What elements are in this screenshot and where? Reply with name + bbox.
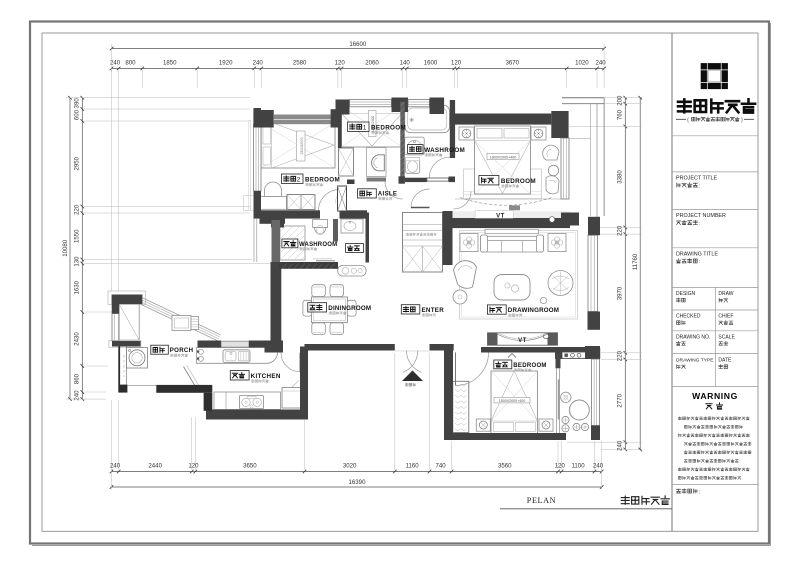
svg-text:WASHROOM: WASHROOM: [424, 147, 465, 154]
svg-text:16390: 16390: [349, 479, 367, 486]
svg-text:PELAN: PELAN: [527, 496, 556, 505]
svg-text:1160: 1160: [406, 463, 420, 470]
svg-text:3560: 3560: [498, 463, 512, 470]
svg-text:1600: 1600: [424, 59, 438, 66]
svg-text:3970: 3970: [617, 286, 624, 300]
svg-text:860: 860: [74, 373, 81, 384]
svg-text:1500X2000: 1500X2000: [300, 137, 304, 154]
svg-text:240: 240: [593, 463, 604, 470]
svg-text:VT: VT: [496, 213, 505, 219]
svg-text:PROJECT TITLE: PROJECT TITLE: [676, 176, 718, 182]
svg-text:2440: 2440: [148, 463, 162, 470]
svg-text:3380: 3380: [617, 170, 624, 184]
svg-text:DRAWINGROOM: DRAWINGROOM: [508, 307, 559, 314]
svg-text:2060: 2060: [365, 59, 379, 66]
svg-text:2430: 2430: [74, 332, 81, 346]
svg-text:CHECKED: CHECKED: [676, 314, 701, 320]
svg-text:DESIGN: DESIGN: [676, 291, 696, 297]
svg-text:DININGROOM: DININGROOM: [328, 305, 371, 312]
svg-text:BEDROOM: BEDROOM: [305, 177, 340, 184]
svg-text::: :: [699, 183, 700, 189]
svg-text:2950: 2950: [74, 156, 81, 170]
svg-text:PROJECT NUMBER: PROJECT NUMBER: [676, 213, 726, 219]
svg-text:390: 390: [74, 98, 81, 109]
svg-text:760: 760: [617, 109, 624, 120]
svg-text:1920: 1920: [219, 59, 233, 66]
svg-text:1800X2000+400: 1800X2000+400: [490, 155, 516, 159]
svg-text:3670: 3670: [505, 59, 519, 66]
svg-text:1550: 1550: [74, 229, 81, 243]
svg-text:200: 200: [617, 95, 624, 106]
svg-text:220: 220: [617, 350, 624, 361]
svg-text:DRAWING NO.: DRAWING NO.: [676, 334, 710, 340]
svg-text:740: 740: [435, 463, 446, 470]
svg-text:3020: 3020: [343, 463, 357, 470]
svg-text:240: 240: [617, 440, 624, 451]
svg-text:240: 240: [595, 59, 606, 66]
svg-text:DRAW: DRAW: [718, 291, 733, 297]
svg-text:120: 120: [451, 59, 462, 66]
svg-text:DRAWING TYPE: DRAWING TYPE: [676, 358, 714, 364]
svg-text:16600: 16600: [349, 41, 367, 48]
svg-text:120: 120: [188, 463, 199, 470]
svg-text:10080: 10080: [62, 239, 69, 257]
svg-text:CHIEF: CHIEF: [718, 314, 733, 320]
svg-text:PORCH: PORCH: [170, 347, 194, 354]
svg-text:BEDROOM: BEDROOM: [371, 125, 406, 132]
svg-text:AISLE: AISLE: [378, 191, 397, 198]
svg-text:220: 220: [74, 204, 81, 215]
svg-text:DATE: DATE: [718, 358, 732, 364]
svg-text:1850: 1850: [163, 59, 177, 66]
svg-text:2770: 2770: [617, 393, 624, 407]
svg-text:KITCHEN: KITCHEN: [251, 373, 281, 380]
svg-text:DRAWING TITLE: DRAWING TITLE: [676, 251, 718, 257]
svg-text:240: 240: [253, 59, 264, 66]
svg-text:600: 600: [74, 109, 81, 120]
svg-text:1020: 1020: [575, 59, 589, 66]
svg-text:1500X2000+400: 1500X2000+400: [499, 399, 525, 403]
svg-text:120: 120: [335, 59, 346, 66]
svg-text:800: 800: [125, 59, 136, 66]
svg-text:WASHROOM: WASHROOM: [299, 242, 337, 248]
svg-text:11760: 11760: [632, 253, 639, 270]
svg-text:WARNING: WARNING: [692, 391, 738, 401]
svg-text:130: 130: [74, 256, 81, 267]
svg-text::: :: [699, 489, 700, 495]
svg-text:VT: VT: [518, 338, 527, 344]
svg-text:3650: 3650: [243, 463, 257, 470]
svg-text::: :: [699, 259, 700, 265]
svg-text:2580: 2580: [293, 59, 307, 66]
svg-text:120: 120: [555, 463, 566, 470]
svg-text:1100: 1100: [571, 463, 585, 470]
svg-text:140: 140: [400, 59, 411, 66]
svg-text::: :: [699, 221, 700, 227]
svg-text:1630: 1630: [74, 280, 81, 294]
svg-text:240: 240: [110, 463, 121, 470]
svg-text:BEDROOM: BEDROOM: [501, 178, 536, 185]
svg-text:220: 220: [617, 225, 624, 236]
svg-text:BEDROOM: BEDROOM: [513, 363, 546, 369]
svg-text:SCALE: SCALE: [718, 334, 735, 340]
svg-text:ENTER: ENTER: [422, 307, 445, 314]
